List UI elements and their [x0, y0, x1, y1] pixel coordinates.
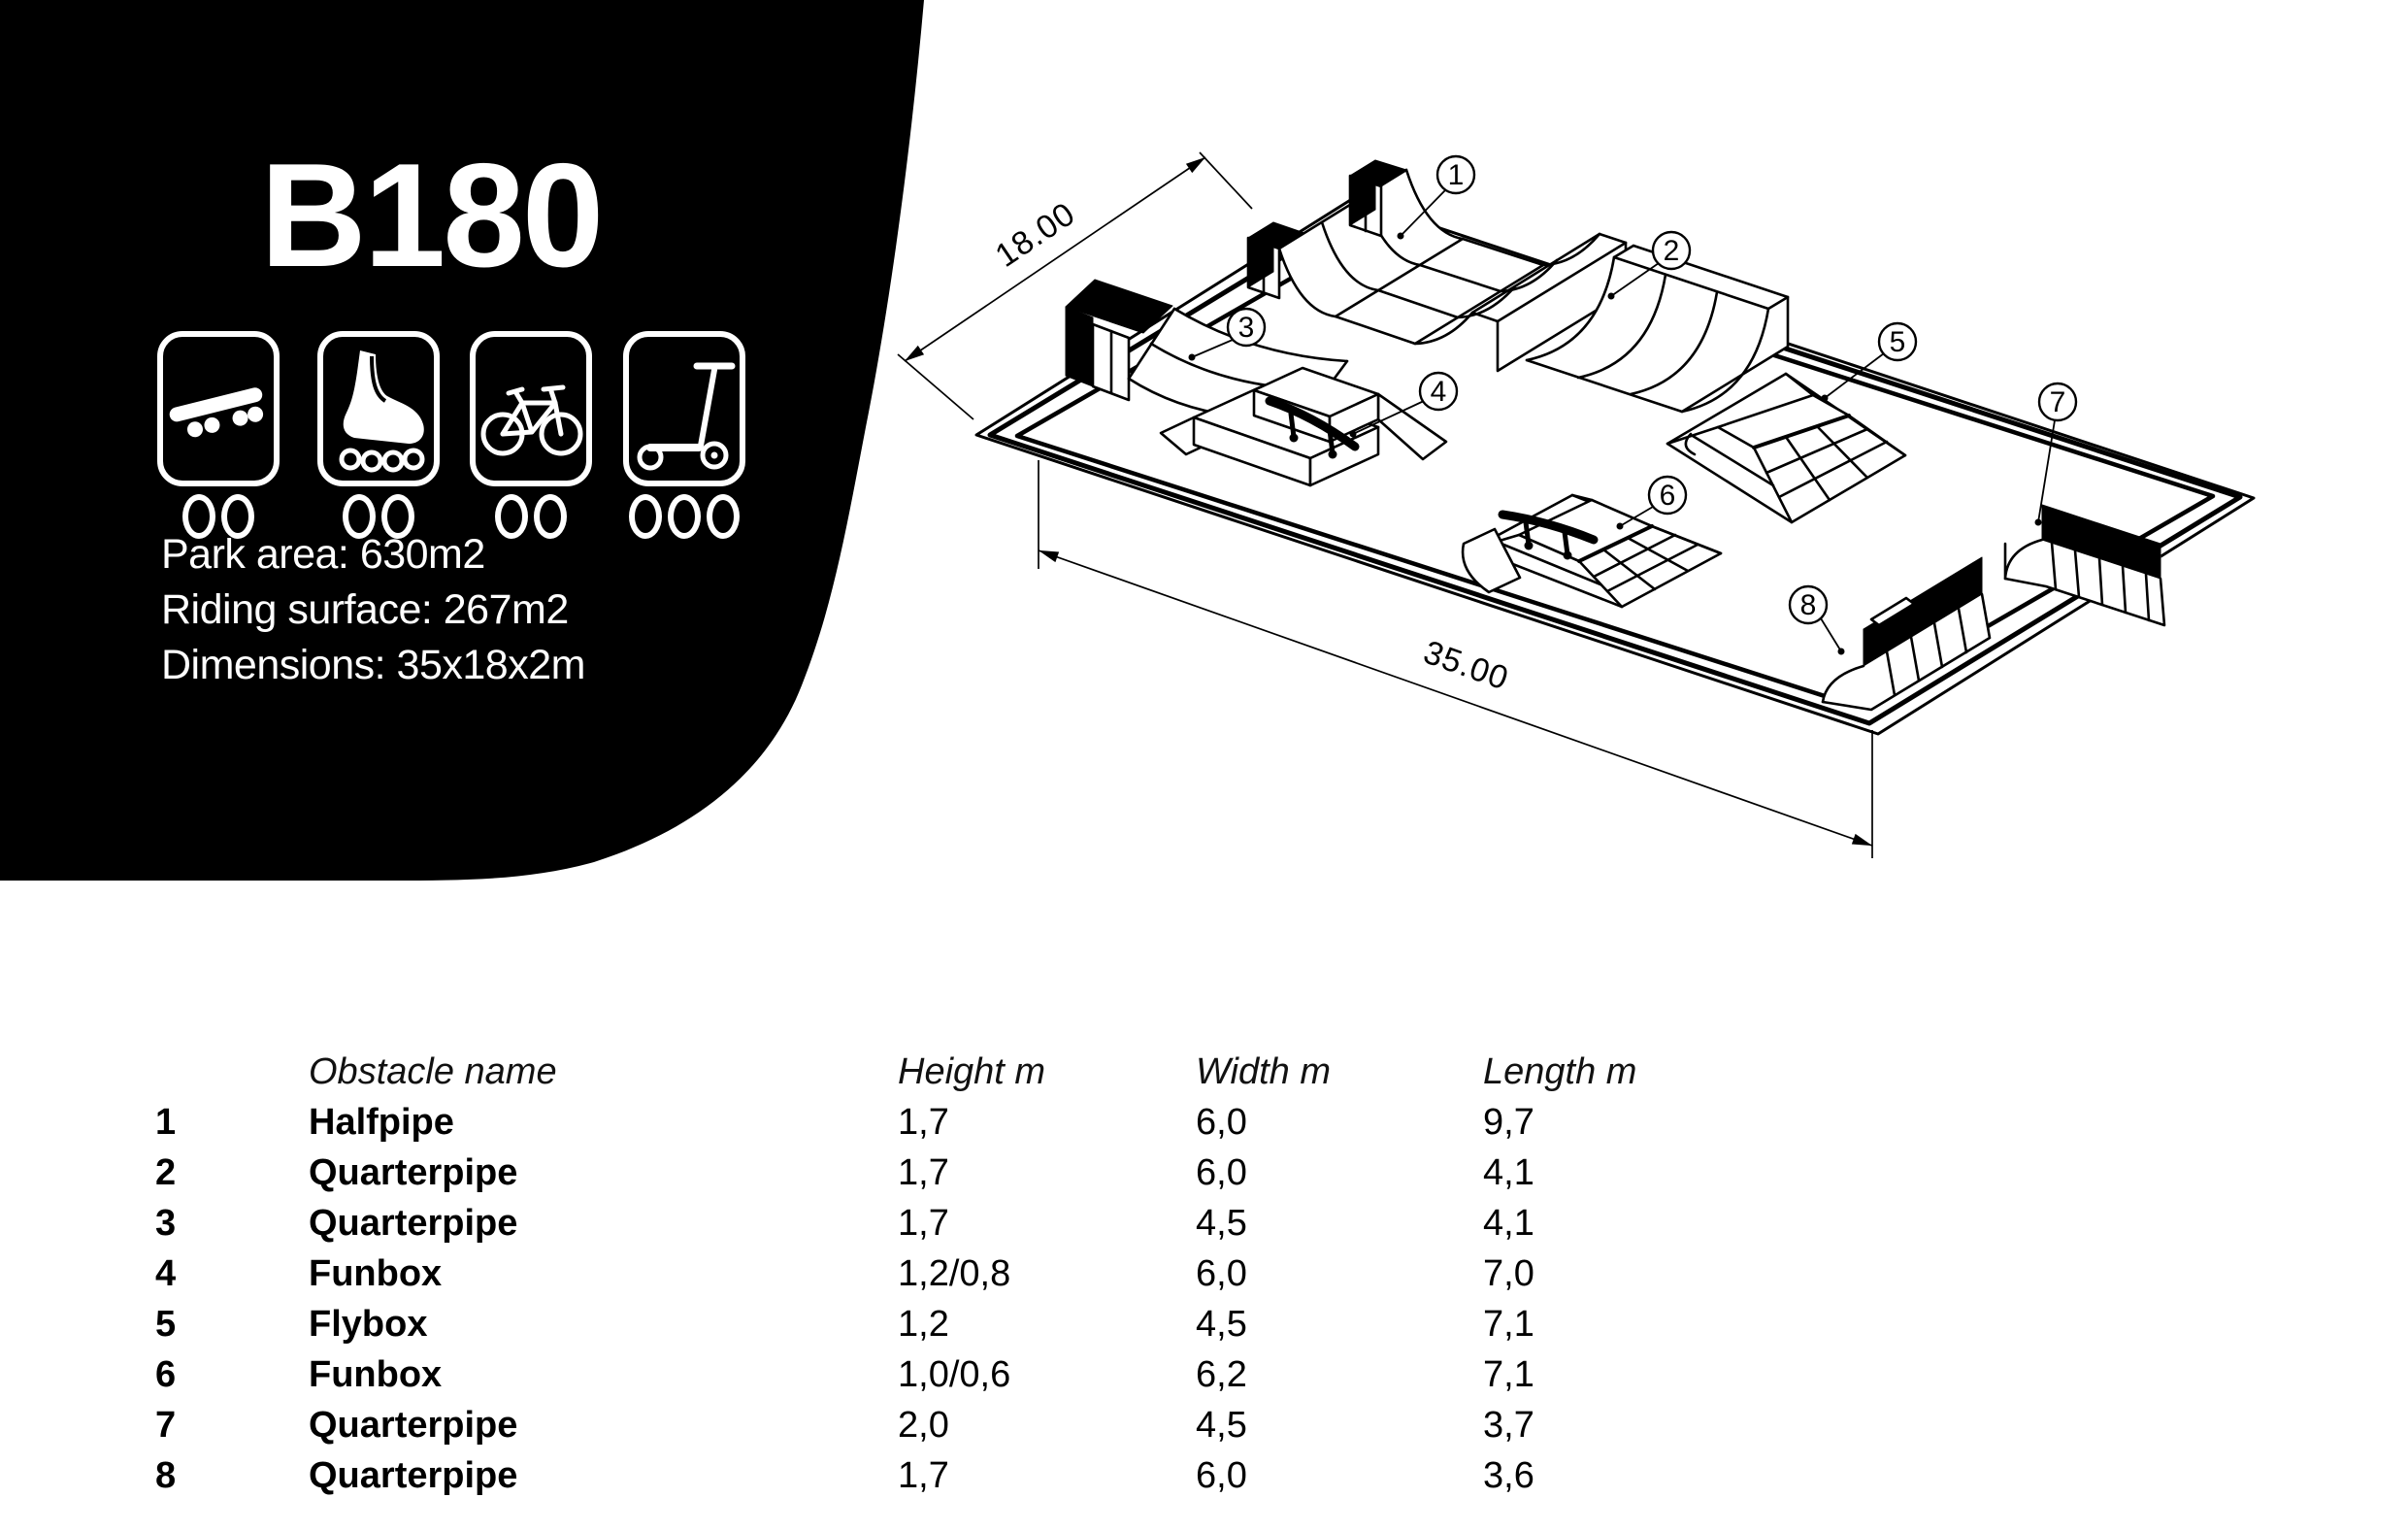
park-area: Park area: 630m2	[161, 527, 585, 582]
callout-7: 7	[2039, 383, 2076, 420]
page-title: B180	[260, 142, 601, 289]
inline-skates-icon	[317, 331, 440, 486]
svg-text:2: 2	[1664, 235, 1680, 267]
dimension-length: 35.00	[1039, 460, 1872, 858]
quarterpipe-8-obstacle	[1823, 557, 1990, 710]
table-row: 3 Quarterpipe 1,7 4,5 4,1	[155, 1198, 1697, 1248]
header-obstacle-name: Obstacle name	[309, 1047, 898, 1097]
callout-3: 3	[1228, 309, 1265, 346]
svg-text:8: 8	[1800, 589, 1817, 621]
scooter-icon	[623, 331, 745, 486]
table-row: 2 Quarterpipe 1,7 6,0 4,1	[155, 1148, 1697, 1198]
park-specs: Park area: 630m2 Riding surface: 267m2 D…	[161, 527, 585, 693]
table-row: 8 Quarterpipe 1,7 6,0 3,6	[155, 1450, 1697, 1501]
table-row: 1 Halfpipe 1,7 6,0 9,7	[155, 1097, 1697, 1148]
table-row: 7 Quarterpipe 2,0 4,5 3,7	[155, 1400, 1697, 1450]
callout-5: 5	[1879, 323, 1916, 360]
callout-1: 1	[1437, 156, 1474, 193]
table-row: 5 Flybox 1,2 4,5 7,1	[155, 1299, 1697, 1349]
width-dimension-label: 18.00	[989, 195, 1082, 275]
callout-8: 8	[1790, 586, 1827, 623]
svg-text:7: 7	[2050, 386, 2066, 418]
length-dimension-label: 35.00	[1419, 634, 1514, 698]
obstacle-table: Obstacle name Height m Width m Length m …	[155, 1047, 1697, 1501]
spec-sheet-page: B180	[0, 0, 2408, 1531]
scooter-difficulty-rings	[629, 494, 740, 539]
dimensions: Dimensions: 35x18x2m	[161, 638, 585, 693]
svg-text:1: 1	[1448, 159, 1465, 191]
svg-text:6: 6	[1660, 480, 1676, 512]
table-row: 6 Funbox 1,0/0,6 6,2 7,1	[155, 1349, 1697, 1400]
callout-4: 4	[1420, 373, 1457, 410]
svg-text:4: 4	[1431, 376, 1447, 408]
svg-text:5: 5	[1890, 326, 1906, 358]
table-header-row: Obstacle name Height m Width m Length m	[155, 1047, 1697, 1097]
svg-text:3: 3	[1238, 312, 1255, 344]
halfpipe-obstacle	[1248, 160, 1626, 371]
quarterpipe-7-obstacle	[2005, 505, 2164, 625]
bmx-bike-icon	[470, 331, 592, 486]
skatepark-isometric-drawing: 18.00 35.00	[874, 58, 2408, 1029]
header-length: Length m	[1483, 1047, 1697, 1097]
table-row: 4 Funbox 1,2/0,8 6,0 7,0	[155, 1248, 1697, 1299]
riding-surface: Riding surface: 267m2	[161, 582, 585, 638]
header-height: Height m	[898, 1047, 1196, 1097]
callout-2: 2	[1653, 232, 1690, 269]
skateboard-icon	[157, 331, 280, 486]
callout-6: 6	[1649, 477, 1686, 514]
header-width: Width m	[1196, 1047, 1483, 1097]
